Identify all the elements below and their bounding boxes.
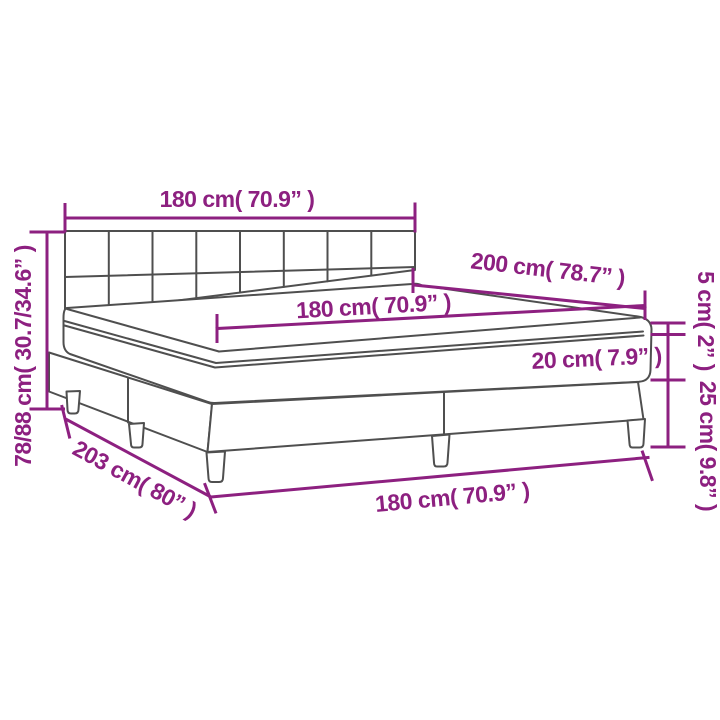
label-base-width: 180 cm( 70.9” ) [374, 477, 531, 517]
label-mattress-length: 200 cm( 78.7” ) [469, 247, 626, 290]
label-base-height: 25 cm( 9.8” ) [695, 381, 720, 511]
leg-head-left [67, 391, 81, 414]
leg-front-corner [207, 452, 226, 483]
label-total-height: 78/88 cm( 30.7/34.6” ) [10, 245, 36, 467]
dimension-diagram: 180 cm( 70.9” ) 78/88 cm( 30.7/34.6” ) 2… [0, 0, 720, 720]
bed-dimension-figure: 180 cm( 70.9” ) 78/88 cm( 30.7/34.6” ) 2… [0, 0, 720, 720]
label-headboard-width: 180 cm( 70.9” ) [160, 186, 315, 212]
leg-foot-right [628, 419, 646, 448]
label-topper-height: 5 cm( 2” ) [693, 271, 719, 371]
leg-foot-middle [432, 435, 450, 467]
leg-left-middle [129, 423, 144, 448]
